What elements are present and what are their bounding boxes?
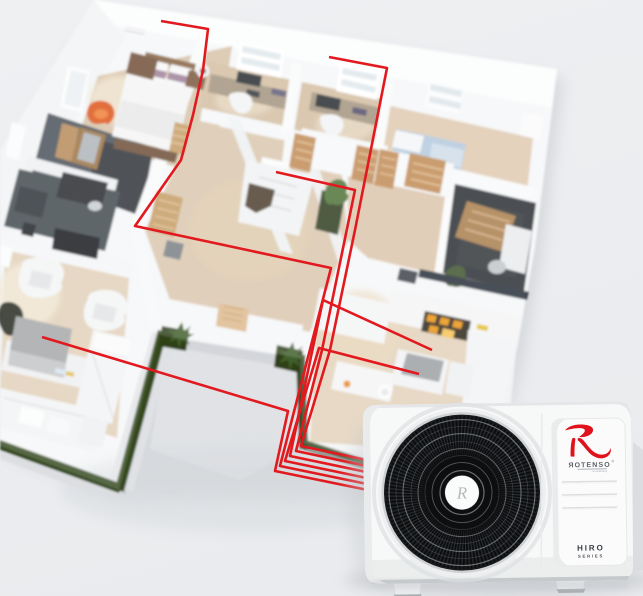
svg-text:HIRO: HIRO: [577, 543, 605, 552]
svg-text:SERIES: SERIES: [578, 553, 604, 558]
svg-text:ЯOTENSO: ЯOTENSO: [568, 462, 610, 470]
svg-text:air conditioning: air conditioning: [592, 470, 608, 473]
svg-text:R: R: [456, 483, 468, 502]
